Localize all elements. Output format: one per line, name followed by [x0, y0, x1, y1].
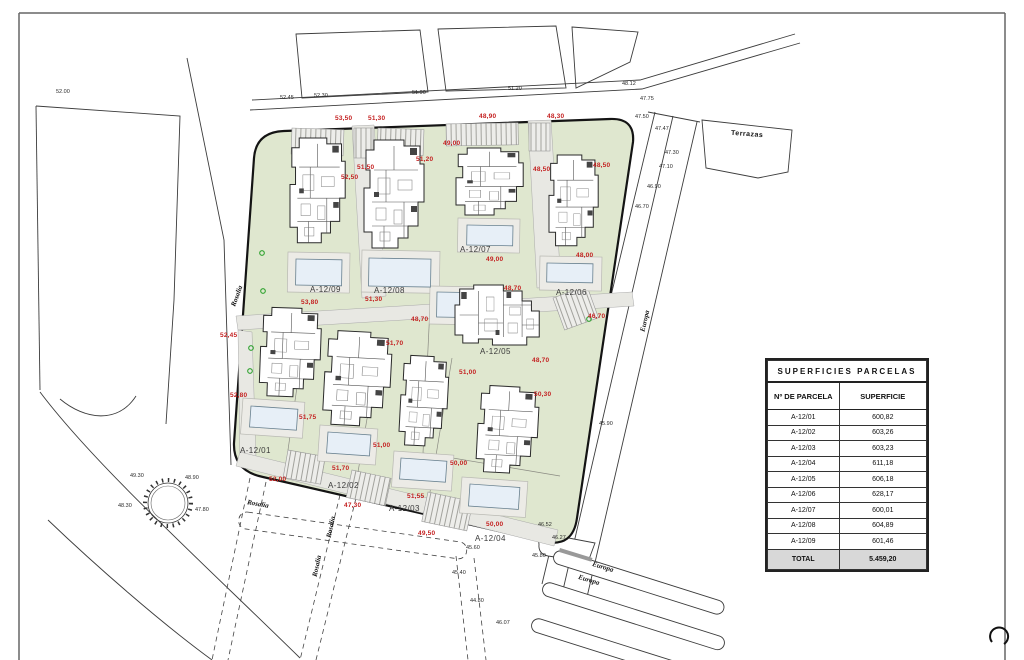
table-total-row: TOTAL 5.459,20: [768, 549, 927, 569]
parcel-cell: A-12/01: [768, 410, 840, 426]
development-block: [234, 119, 634, 546]
pool-a-12-07: [467, 225, 513, 246]
table-row: A-12/09601,46: [768, 534, 927, 550]
pool-a-12-08: [369, 258, 431, 287]
col-header-surface: SUPERFICIE: [839, 382, 926, 410]
surface-cell: 604,89: [839, 518, 926, 534]
pool-a-12-06: [547, 263, 593, 283]
parcel-cell: A-12/07: [768, 503, 840, 519]
parcel-cell: A-12/03: [768, 441, 840, 457]
total-label: TOTAL: [768, 549, 840, 569]
site-plan-sheet: A-12/01 A-12/02 A-12/03 A-12/04 A-12/05 …: [0, 0, 1024, 660]
surface-cell: 628,17: [839, 487, 926, 503]
pool-a-12-09: [296, 259, 342, 286]
table-header-row: Nº DE PARCELA SUPERFICIE: [768, 382, 927, 410]
roundabout: [145, 480, 191, 526]
col-header-parcel: Nº DE PARCELA: [768, 382, 840, 410]
table-row: A-12/01600,82: [768, 410, 927, 426]
parcel-cell: A-12/05: [768, 472, 840, 488]
total-value: 5.459,20: [839, 549, 926, 569]
table-row: A-12/04611,18: [768, 456, 927, 472]
table-row: A-12/03603,23: [768, 441, 927, 457]
surface-cell: 603,26: [839, 425, 926, 441]
surface-cell: 601,46: [839, 534, 926, 550]
pool-a-12-03: [400, 458, 447, 482]
bottom-streets: [530, 532, 726, 660]
surface-cell: 606,18: [839, 472, 926, 488]
table-title: SUPERFICIES PARCELAS: [768, 361, 927, 383]
table-row: A-12/05606,18: [768, 472, 927, 488]
table-row: A-12/02603,26: [768, 425, 927, 441]
table-row: A-12/07600,01: [768, 503, 927, 519]
parcel-cell: A-12/09: [768, 534, 840, 550]
surface-cell: 600,01: [839, 503, 926, 519]
parcel-areas-table: SUPERFICIES PARCELAS Nº DE PARCELA SUPER…: [765, 358, 929, 572]
parcel-cell: A-12/08: [768, 518, 840, 534]
table-title-row: SUPERFICIES PARCELAS: [768, 361, 927, 383]
pool-a-12-02: [327, 432, 371, 456]
table-row: A-12/06628,17: [768, 487, 927, 503]
pool-a-12-01: [250, 406, 298, 430]
parcel-cell: A-12/06: [768, 487, 840, 503]
parcel-cell: A-12/02: [768, 425, 840, 441]
surface-cell: 611,18: [839, 456, 926, 472]
table-row: A-12/08604,89: [768, 518, 927, 534]
surface-cell: 603,23: [839, 441, 926, 457]
pool-a-12-04: [468, 484, 519, 509]
parcel-cell: A-12/04: [768, 456, 840, 472]
surface-cell: 600,82: [839, 410, 926, 426]
